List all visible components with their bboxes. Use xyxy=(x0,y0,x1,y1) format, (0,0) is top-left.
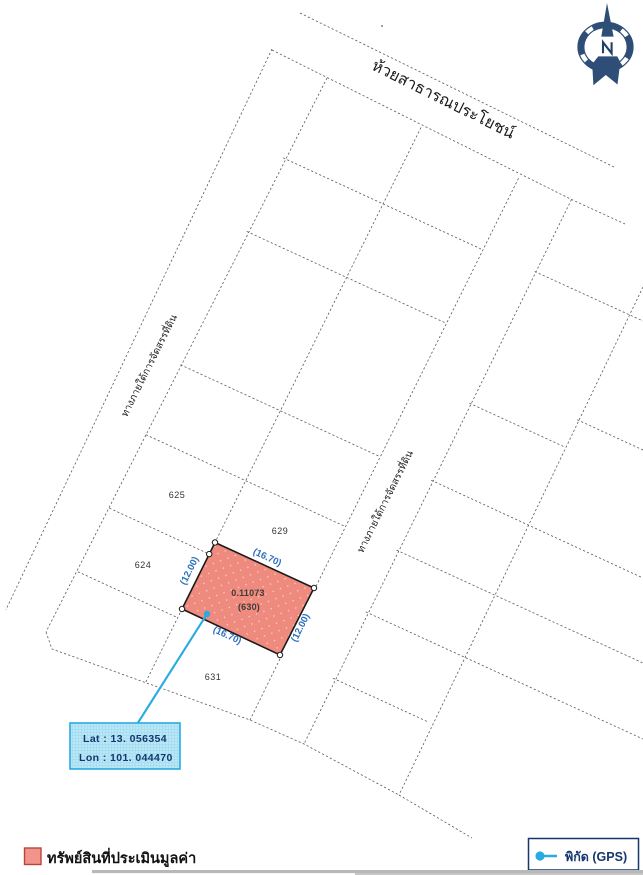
svg-text:625: 625 xyxy=(169,490,186,500)
svg-text:Lon : 101. 044470: Lon : 101. 044470 xyxy=(79,752,173,764)
svg-text:624: 624 xyxy=(135,560,152,570)
svg-text:ทางภายใต้การจัดสรรที่ดิน: ทางภายใต้การจัดสรรที่ดิน xyxy=(353,448,416,555)
svg-text:พิกัด (GPS): พิกัด (GPS) xyxy=(565,850,627,864)
svg-text:Lat : 13. 056354: Lat : 13. 056354 xyxy=(83,733,167,745)
svg-text:0.11073: 0.11073 xyxy=(231,588,264,598)
svg-text:(630): (630) xyxy=(238,602,260,612)
svg-text:ทางภายใต้การจัดสรรที่ดิน: ทางภายใต้การจัดสรรที่ดิน xyxy=(117,312,180,419)
svg-text:631: 631 xyxy=(205,672,222,682)
svg-text:ห้วยสาธารณประโยชน์: ห้วยสาธารณประโยชน์ xyxy=(369,56,518,143)
svg-text:629: 629 xyxy=(272,526,289,536)
svg-text:ทรัพย์สินที่ประเมินมูลค่า: ทรัพย์สินที่ประเมินมูลค่า xyxy=(47,847,196,867)
